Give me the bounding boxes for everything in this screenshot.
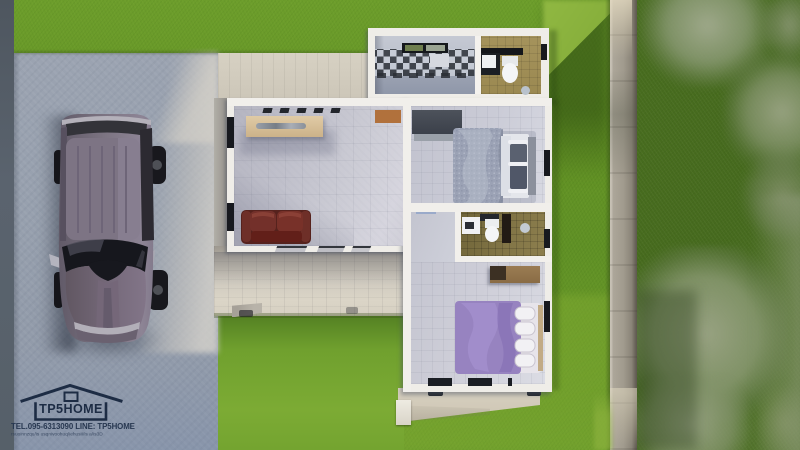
svg-text:TEL.095-6313090 LINE: TP5HOM: TEL.095-6313090 LINE: TP5HOME: [11, 422, 135, 431]
svg-text:TP5HOME: TP5HOME: [39, 402, 103, 416]
svg-text:rsuoinnzqu/is usqnivoohuq/iehu: rsuoinnzqu/is usqnivoohuq/iehusiI/is a/i…: [11, 432, 103, 438]
